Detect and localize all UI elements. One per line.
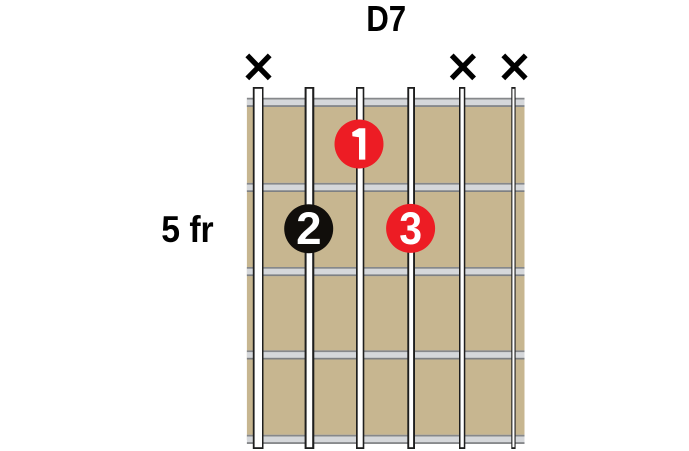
- svg-text:3: 3: [399, 203, 422, 254]
- svg-text:2: 2: [296, 203, 321, 254]
- svg-text:D7: D7: [366, 0, 406, 39]
- svg-text:5 fr: 5 fr: [161, 209, 214, 250]
